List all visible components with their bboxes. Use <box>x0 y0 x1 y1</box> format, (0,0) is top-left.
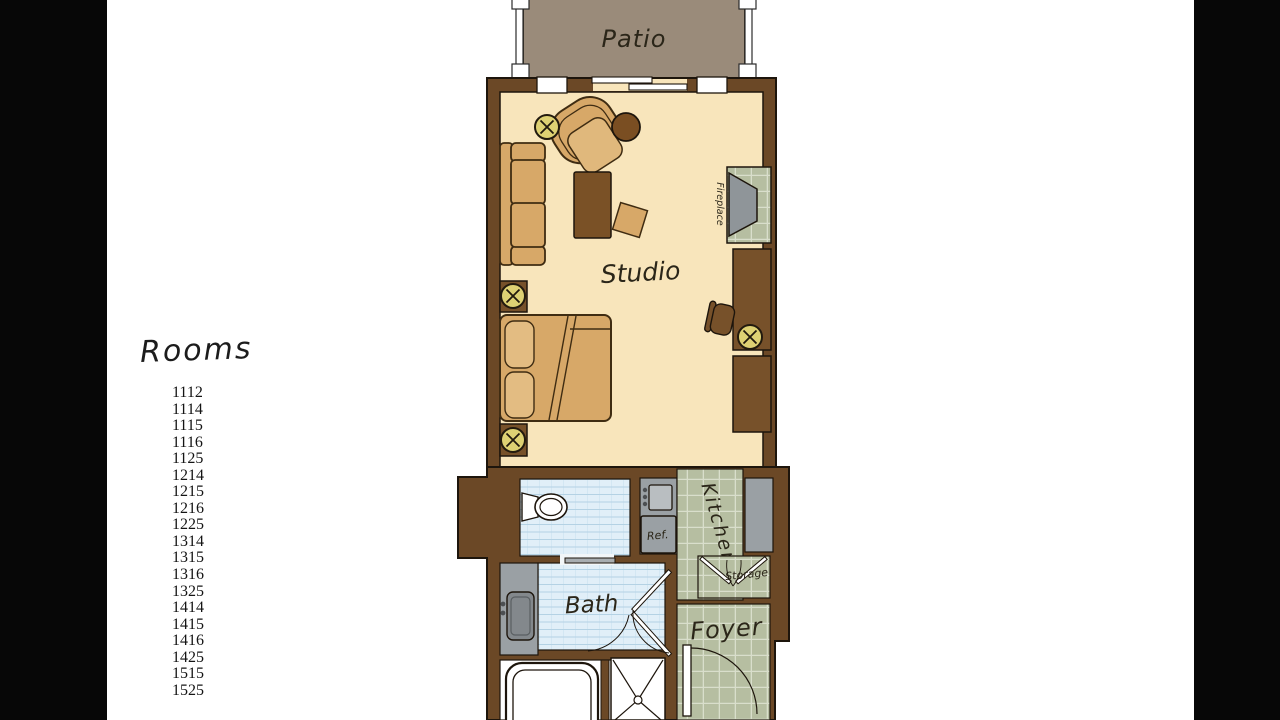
sliding-door-panel <box>629 84 687 90</box>
toilet <box>522 493 567 521</box>
shower <box>611 658 665 720</box>
railing-post <box>739 64 756 78</box>
pocket-door <box>565 558 615 563</box>
bath-label: Bath <box>564 591 619 620</box>
dresser-unit <box>733 356 771 432</box>
vanity <box>500 563 538 655</box>
railing-post <box>512 0 529 9</box>
pillow <box>505 372 534 418</box>
patio-railing-left <box>516 6 523 68</box>
bed <box>500 315 611 421</box>
tub-shower-divider-wall <box>601 660 609 720</box>
fireplace-label: Fireplace <box>714 182 725 226</box>
patio-railing-right <box>745 6 752 68</box>
ceiling-light-symbol <box>738 325 762 349</box>
ceiling-light-symbol <box>501 428 525 452</box>
patio: Patio <box>512 0 756 78</box>
window <box>697 77 727 93</box>
desk-chair <box>704 301 736 337</box>
side-table <box>612 113 640 141</box>
railing-post <box>512 64 529 78</box>
window <box>537 77 567 93</box>
pillow <box>505 321 534 368</box>
refrigerator-label: Ref. <box>646 528 669 543</box>
ceiling-light-symbol <box>535 115 559 139</box>
patio-label: Patio <box>602 25 667 53</box>
ceiling-light-symbol <box>501 284 525 308</box>
sliding-door-panel <box>592 77 652 83</box>
shower-drain <box>634 696 642 704</box>
coffee-table <box>574 172 611 238</box>
screenshot-stage: Rooms 1112 1114 1115 1116 1125 1214 1215… <box>0 0 1280 720</box>
bathtub <box>506 663 598 720</box>
railing-post <box>739 0 756 9</box>
sofa <box>500 143 545 265</box>
floorplan-svg: Patio Fireplace <box>0 0 1280 720</box>
refrigerator: Ref. <box>641 516 676 553</box>
studio-label: Studio <box>600 256 681 289</box>
closet <box>745 478 773 552</box>
foyer-label: Foyer <box>689 612 764 645</box>
